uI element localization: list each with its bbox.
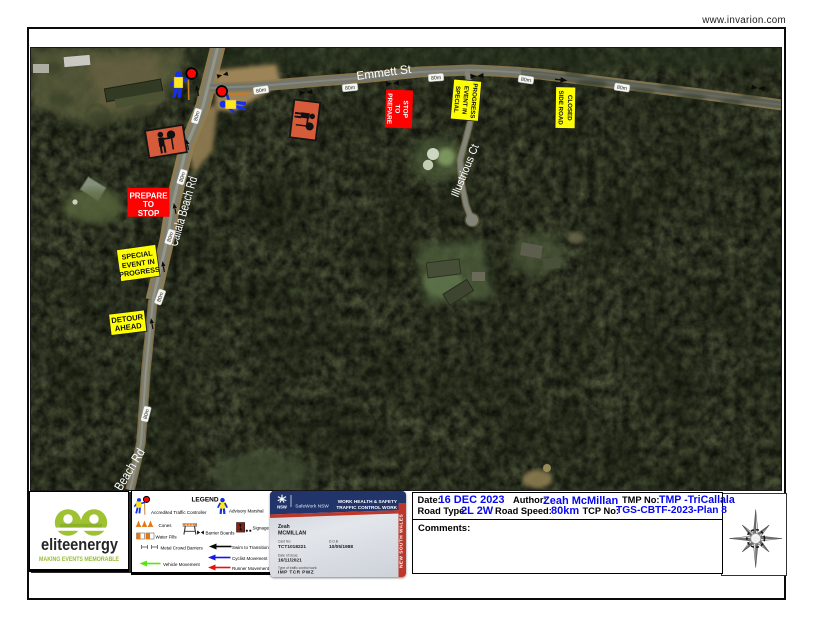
svg-text:Cyclist Movement: Cyclist Movement	[232, 556, 268, 561]
svg-text:Signage: Signage	[252, 526, 269, 531]
svg-text:16/11/2021: 16/11/2021	[278, 557, 302, 563]
svg-text:Advisory Marshal: Advisory Marshal	[229, 509, 264, 514]
svg-text:Swim to Transition: Swim to Transition	[232, 545, 269, 550]
svg-text:Cones: Cones	[158, 523, 172, 528]
svg-text:TCT1018221: TCT1018221	[278, 544, 306, 550]
svg-text:Card No:: Card No:	[278, 539, 291, 543]
svg-text:eliteenergy: eliteenergy	[41, 535, 118, 554]
svg-text:NEW SOUTH WALES: NEW SOUTH WALES	[399, 513, 404, 567]
svg-text:Runner Movement: Runner Movement	[232, 566, 270, 571]
svg-text:MCMILLAN: MCMILLAN	[278, 530, 306, 536]
svg-text:Zeah: Zeah	[278, 524, 290, 530]
svg-text:Date of Issue:: Date of Issue:	[278, 553, 298, 557]
svg-text:80m: 80m	[345, 85, 356, 92]
svg-text:Water Fills: Water Fills	[155, 535, 177, 540]
svg-text:LEGEND: LEGEND	[191, 497, 218, 504]
svg-text:MAKING EVENTS MEMORABLE: MAKING EVENTS MEMORABLE	[39, 556, 119, 563]
svg-text:Barrier Boards: Barrier Boards	[205, 531, 235, 536]
svg-text:SafeWork NSW: SafeWork NSW	[295, 503, 329, 509]
svg-text:80m: 80m	[431, 75, 441, 82]
svg-text:D.O.B: D.O.B	[329, 539, 339, 543]
svg-text:Accredited Traffic Controller: Accredited Traffic Controller	[151, 510, 207, 515]
svg-text:NSW: NSW	[277, 504, 287, 509]
svg-text:IMP TCR PWZ: IMP TCR PWZ	[278, 569, 314, 575]
svg-text:WORK HEALTH & SAFETY: WORK HEALTH & SAFETY	[338, 499, 398, 504]
svg-text:TRAFFIC CONTROL WORK: TRAFFIC CONTROL WORK	[336, 504, 397, 509]
svg-text:Metal Crowd Barriers: Metal Crowd Barriers	[160, 546, 203, 551]
svg-text:Vehicle Movement: Vehicle Movement	[163, 562, 201, 567]
svg-text:10/05/1988: 10/05/1988	[329, 544, 353, 550]
svg-text:Type of traffic control work:: Type of traffic control work:	[278, 566, 317, 570]
